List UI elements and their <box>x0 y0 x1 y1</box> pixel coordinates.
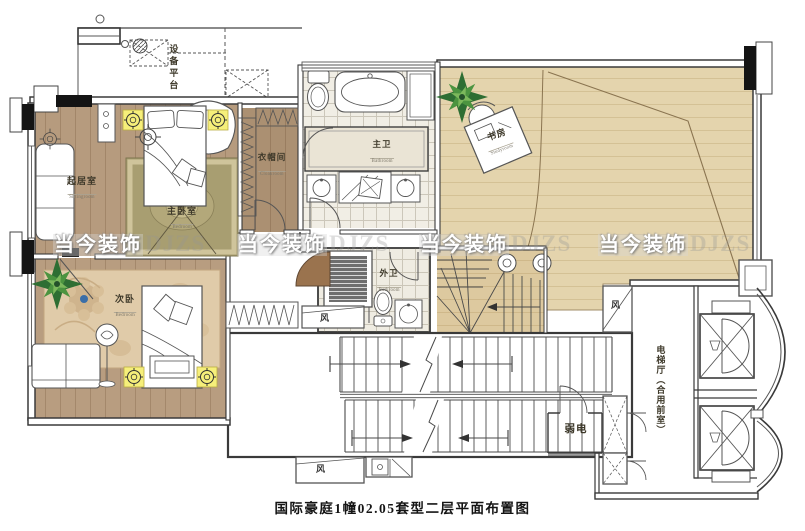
drawing-title: 国际豪庭1幢02.05套型二层平面布置图 <box>0 497 805 517</box>
room-name: 衣帽间 <box>246 153 298 163</box>
watermark: 当今装饰DJZS <box>53 228 205 257</box>
watermark-latin: DJZS <box>511 231 571 256</box>
label-vent-shaft: 风 <box>611 298 620 311</box>
watermark-latin: DJZS <box>690 231 750 256</box>
room-name: 设备平台 <box>168 36 178 100</box>
watermark: 当今装饰DJZS <box>419 228 571 257</box>
spotlight-symbol <box>124 367 144 387</box>
label-living-room: 起居室 Sittingroom <box>56 176 108 205</box>
label-guest-bath: 外卫 Bathroom <box>363 269 415 297</box>
winder-staircase <box>437 250 551 333</box>
label-vent-shaft: 风 <box>316 462 325 475</box>
label-master-bath: 主卫 Bathroom <box>356 140 408 168</box>
main-staircase <box>228 333 632 457</box>
floor-plan-drawing <box>0 0 805 531</box>
room-name: 起居室 <box>56 176 108 186</box>
room-name: 主卧室 <box>156 206 208 216</box>
watermark: 当今装饰DJZS <box>598 228 750 257</box>
label-weak-current: 弱电 <box>556 424 596 436</box>
room-name-en: Bedroom <box>114 312 137 318</box>
label-vent-shaft: 风 <box>320 311 329 324</box>
spotlight-symbol <box>123 110 143 130</box>
label-cloakroom: 衣帽间 Cloakroom <box>246 153 298 181</box>
room-name-en: Bathroom <box>377 287 401 293</box>
room-name: 外卫 <box>363 269 415 279</box>
watermark-latin: DJZS <box>145 231 205 256</box>
room-name: 弱电 <box>556 424 596 436</box>
room-name-en: Cloakroom <box>259 171 286 177</box>
master-bathroom-fixtures <box>305 71 434 203</box>
elevator-shaft <box>700 314 754 378</box>
room-name: 次卧 <box>99 294 151 304</box>
watermark: 当今装饰DJZS <box>237 228 389 257</box>
watermark-text: 当今装饰 <box>419 234 509 256</box>
watermark-text: 当今装饰 <box>53 234 143 256</box>
label-elevator-hall: 电梯厅（合用前室） <box>655 312 665 467</box>
elevator-shaft <box>700 406 754 470</box>
room-name: 电梯厅（合用前室） <box>655 312 665 467</box>
equipment-platform <box>78 15 302 98</box>
spotlight-symbol <box>208 110 228 130</box>
label-equipment-platform: 设备平台 <box>168 36 178 100</box>
room-name: 主卫 <box>356 140 408 150</box>
watermark-text: 当今装饰 <box>237 234 327 256</box>
room-name-en: Sittingroom <box>68 194 97 200</box>
spotlight-symbol <box>197 367 217 387</box>
label-second-bedroom: 次卧 Bedroom <box>99 294 151 323</box>
watermark-text: 当今装饰 <box>598 234 688 256</box>
floor-plan-page: 设备平台 起居室 Sittingroom 主卧室 Bedroom 衣帽间 Clo… <box>0 0 805 531</box>
room-name-en: Bathroom <box>370 158 394 164</box>
watermark-latin: DJZS <box>329 231 389 256</box>
